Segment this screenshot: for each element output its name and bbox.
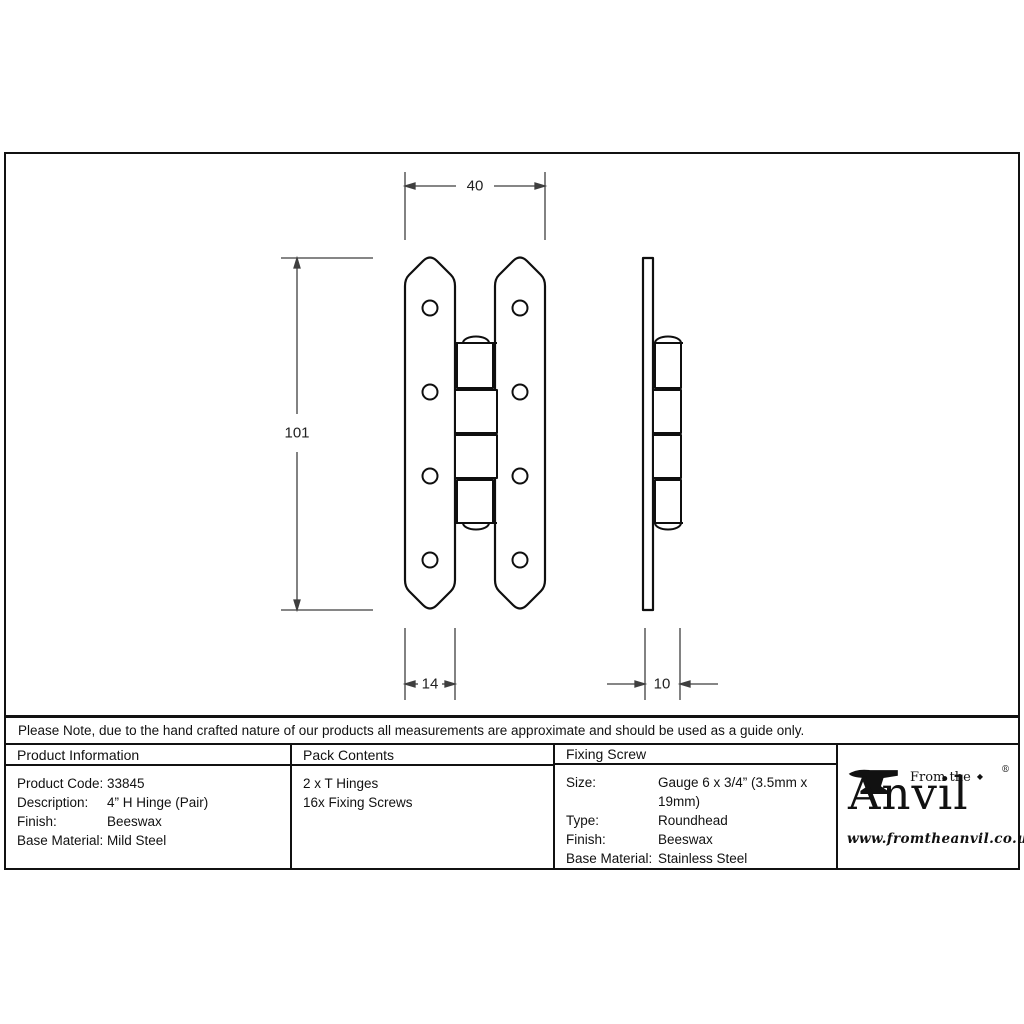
side-plate bbox=[643, 258, 653, 610]
product-info-table: Product Information Product Code: 33845 … bbox=[6, 745, 1018, 868]
product-code-label: Product Code: bbox=[17, 774, 107, 793]
screw-finish-value: Beeswax bbox=[658, 830, 713, 849]
base-material-row: Base Material: Mild Steel bbox=[17, 831, 290, 850]
fixing-screw-column: Fixing Screw Size: Gauge 6 x 3/4” (3.5mm… bbox=[555, 745, 838, 868]
screw-type-row: Type: Roundhead bbox=[566, 811, 836, 830]
pack-contents-line: 16x Fixing Screws bbox=[303, 793, 553, 812]
brand-logo-cell: Anvil From the ◆ ® www.fromtheanvil.co.u… bbox=[838, 745, 1018, 868]
registered-mark: ® bbox=[1001, 765, 1010, 775]
side-barrel bbox=[653, 337, 683, 530]
finish-label: Finish: bbox=[17, 812, 107, 831]
dim-depth-label: 10 bbox=[651, 676, 674, 693]
screw-size-label: Size: bbox=[566, 773, 658, 811]
screw-size-row: Size: Gauge 6 x 3/4” (3.5mm x 19mm) bbox=[566, 773, 836, 811]
hinge-front-view bbox=[405, 258, 545, 609]
pack-contents-column: Pack Contents 2 x T Hinges 16x Fixing Sc… bbox=[292, 745, 555, 868]
base-material-label: Base Material: bbox=[17, 831, 107, 850]
screw-finish-label: Finish: bbox=[566, 830, 658, 849]
screw-base-material-value: Stainless Steel bbox=[658, 849, 747, 868]
screw-finish-row: Finish: Beeswax bbox=[566, 830, 836, 849]
description-value: 4” H Hinge (Pair) bbox=[107, 793, 208, 812]
product-information-body: Product Code: 33845 Description: 4” H Hi… bbox=[6, 766, 290, 850]
dim-width-label: 40 bbox=[464, 178, 487, 195]
product-code-row: Product Code: 33845 bbox=[17, 774, 290, 793]
product-information-header: Product Information bbox=[6, 745, 290, 766]
pack-contents-line: 2 x T Hinges bbox=[303, 774, 553, 793]
base-material-value: Mild Steel bbox=[107, 831, 166, 850]
technical-drawing: 40 101 14 10 bbox=[6, 154, 1018, 718]
brand-website: www.fromtheanvil.co.uk bbox=[847, 831, 1024, 847]
measurement-note: Please Note, due to the hand crafted nat… bbox=[6, 718, 1018, 745]
description-label: Description: bbox=[17, 793, 107, 812]
finish-value: Beeswax bbox=[107, 812, 162, 831]
screw-type-label: Type: bbox=[566, 811, 658, 830]
brand-prefix: From the ◆ bbox=[910, 770, 983, 785]
pack-contents-header: Pack Contents bbox=[292, 745, 553, 766]
drawing-sheet: 40 101 14 10 Please Note, due to the han… bbox=[4, 152, 1020, 870]
dim-leaf-label: 14 bbox=[419, 676, 442, 693]
hinge-drawing-svg bbox=[4, 152, 1020, 718]
pack-contents-body: 2 x T Hinges 16x Fixing Screws bbox=[292, 766, 553, 812]
finish-row: Finish: Beeswax bbox=[17, 812, 290, 831]
from-the-anvil-logo: Anvil From the ◆ ® www.fromtheanvil.co.u… bbox=[846, 767, 1010, 847]
product-code-value: 33845 bbox=[107, 774, 145, 793]
screw-size-value: Gauge 6 x 3/4” (3.5mm x 19mm) bbox=[658, 773, 836, 811]
screw-type-value: Roundhead bbox=[658, 811, 728, 830]
product-information-column: Product Information Product Code: 33845 … bbox=[6, 745, 292, 868]
screw-base-material-row: Base Material: Stainless Steel bbox=[566, 849, 836, 868]
dim-height-label: 101 bbox=[281, 425, 312, 442]
fixing-screw-header: Fixing Screw bbox=[555, 745, 836, 765]
fixing-screw-body: Size: Gauge 6 x 3/4” (3.5mm x 19mm) Type… bbox=[555, 765, 836, 868]
hinge-side-view bbox=[643, 258, 683, 610]
screw-base-material-label: Base Material: bbox=[566, 849, 658, 868]
brand-prefix-text: From the bbox=[910, 770, 971, 785]
measurement-note-text: Please Note, due to the hand crafted nat… bbox=[18, 723, 804, 738]
description-row: Description: 4” H Hinge (Pair) bbox=[17, 793, 290, 812]
diamond-icon: ◆ bbox=[977, 773, 983, 781]
hinge-knuckle bbox=[455, 337, 497, 530]
